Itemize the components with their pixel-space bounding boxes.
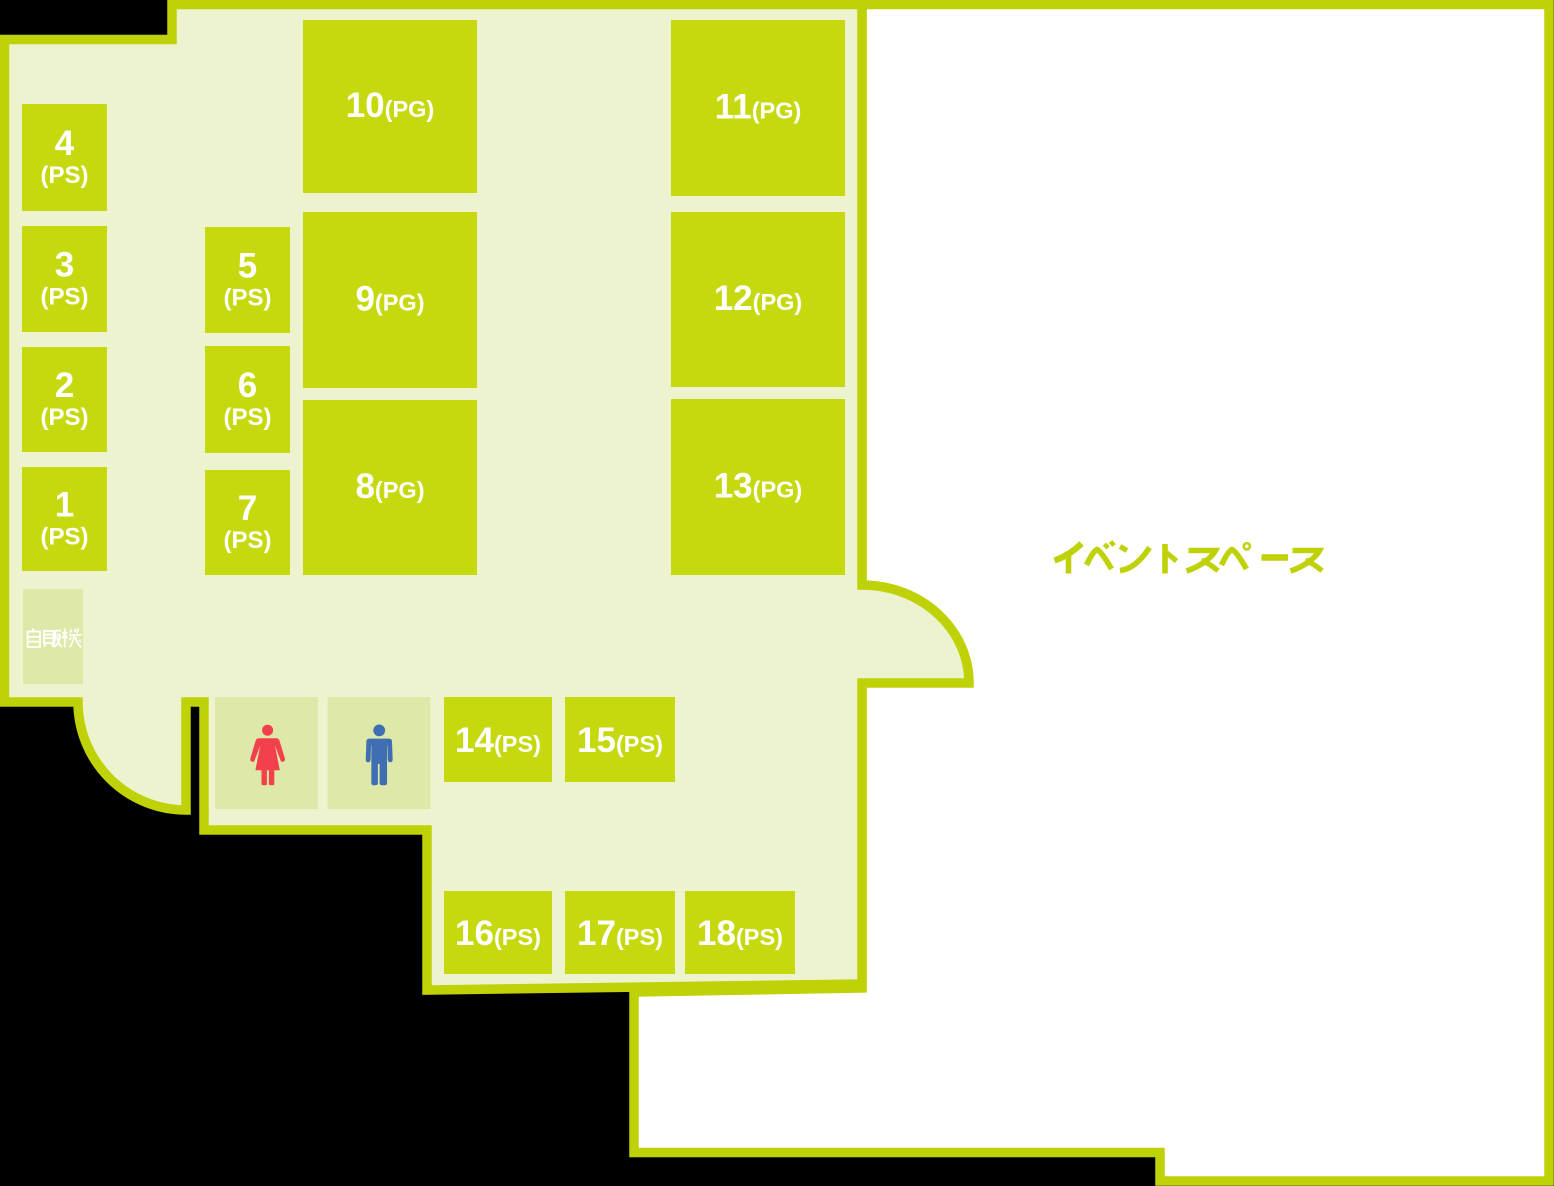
svg-text:1: 1 (55, 486, 74, 525)
svg-text:6: 6 (238, 366, 257, 405)
svg-text:3: 3 (55, 246, 74, 285)
svg-text:4: 4 (55, 124, 75, 163)
svg-text:(PS): (PS) (41, 524, 89, 551)
svg-text:(PS): (PS) (224, 404, 272, 431)
svg-text:7: 7 (238, 489, 257, 528)
svg-text:(PS): (PS) (224, 527, 272, 554)
svg-text:(PS): (PS) (41, 404, 89, 431)
svg-text:5: 5 (238, 247, 257, 286)
svg-text:2: 2 (55, 366, 74, 405)
svg-text:(PS): (PS) (41, 162, 89, 189)
svg-text:(PS): (PS) (224, 285, 272, 312)
svg-text:(PS): (PS) (41, 284, 89, 311)
